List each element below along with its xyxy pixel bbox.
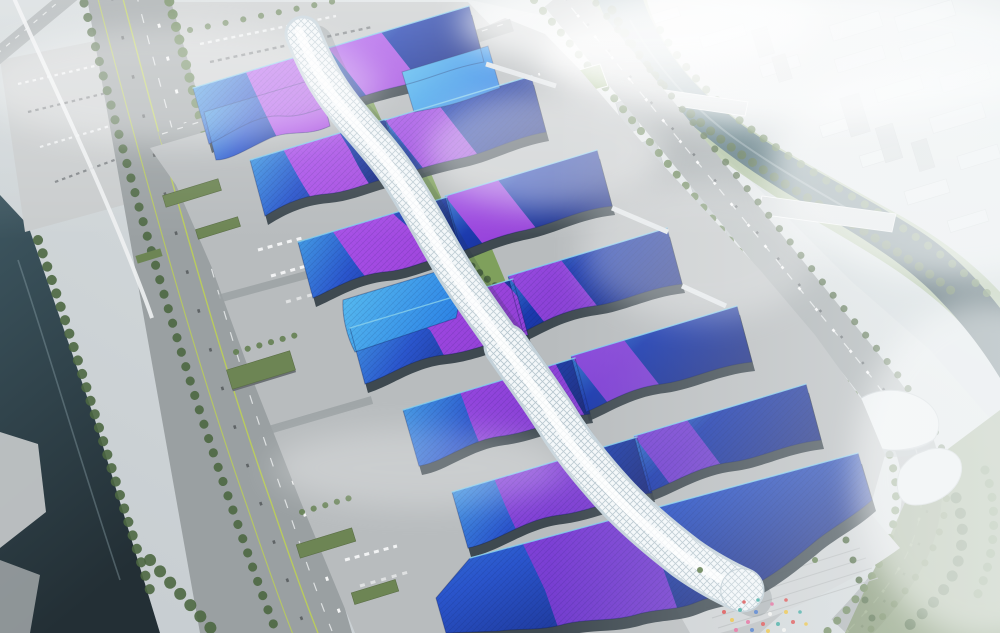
fog-overlay	[0, 0, 1000, 633]
haze-veil-right	[0, 0, 1000, 633]
aerial-rendering: Hazy daylight aerial rendering of a vast…	[0, 0, 1000, 633]
rendering-canvas	[0, 0, 1000, 633]
